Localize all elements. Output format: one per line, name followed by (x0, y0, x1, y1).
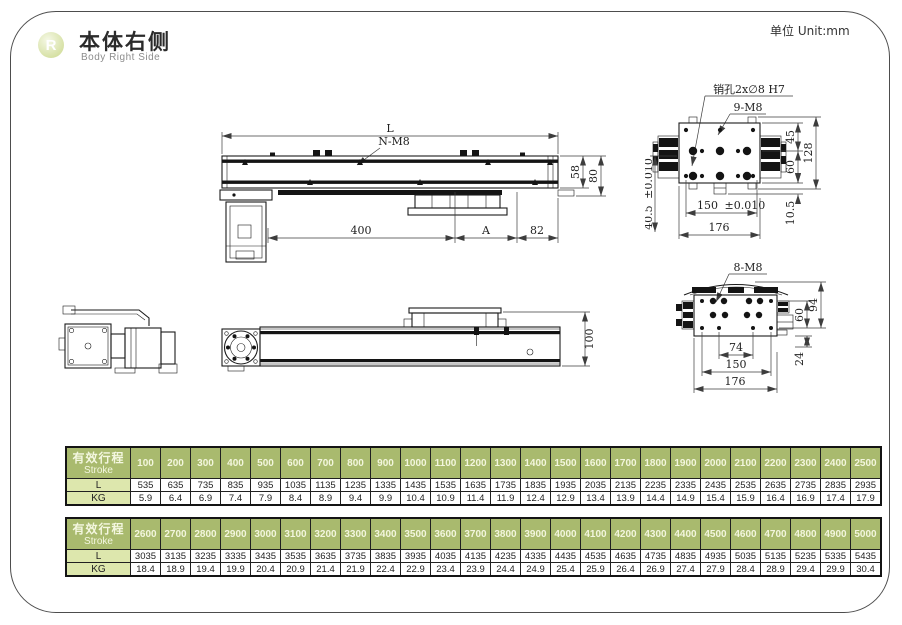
kg-value-cell: 14.4 (641, 492, 671, 506)
l-value-cell: 535 (131, 479, 161, 492)
l-value-cell: 4935 (701, 550, 731, 563)
kg-value-cell: 13.4 (581, 492, 611, 506)
l-value-cell: 3335 (221, 550, 251, 563)
stroke-value-header: 1200 (461, 447, 491, 479)
kg-value-cell: 27.4 (671, 563, 701, 577)
stroke-value-header: 1600 (581, 447, 611, 479)
stroke-value-header: 2800 (191, 518, 221, 550)
stroke-value-header: 3700 (461, 518, 491, 550)
stroke-value-header: 100 (131, 447, 161, 479)
kg-value-cell: 23.9 (461, 563, 491, 577)
l-value-cell: 3435 (251, 550, 281, 563)
kg-value-cell: 12.9 (551, 492, 581, 506)
rail-dome (684, 285, 788, 296)
side-view-drawing: L N-M8 (210, 106, 660, 276)
stroke-value-header: 1400 (521, 447, 551, 479)
stroke-table-2: 有效行程Stroke260027002800290030003100320033… (65, 517, 882, 577)
kg-value-cell: 23.4 (431, 563, 461, 577)
kg-value-cell: 18.4 (131, 563, 161, 577)
stroke-value-header: 2500 (851, 447, 882, 479)
kg-value-cell: 17.9 (851, 492, 882, 506)
dim-176-label: 176 (709, 221, 730, 234)
stroke-value-header: 3400 (371, 518, 401, 550)
l-value-cell: 2335 (671, 479, 701, 492)
dim-150-tol: ±0.010 (725, 199, 766, 212)
kg-value-cell: 29.9 (821, 563, 851, 577)
dim-100-group: 100 (503, 312, 596, 366)
dim-bottom-group: 74 150 176 (694, 332, 777, 393)
n-m8-label: N-M8 (378, 135, 410, 148)
stroke-table-2-container: 有效行程Stroke260027002800290030003100320033… (65, 517, 882, 577)
kg-value-cell: 9.4 (341, 492, 371, 506)
bearing-housing (222, 329, 260, 371)
stroke-value-header: 1300 (491, 447, 521, 479)
stroke-value-header: 500 (251, 447, 281, 479)
stroke-value-header: 1700 (611, 447, 641, 479)
kg-value-cell: 15.9 (731, 492, 761, 506)
kg-value-cell: 8.4 (281, 492, 311, 506)
stroke-value-header: 2000 (701, 447, 731, 479)
right-roller (777, 301, 793, 335)
kg-value-cell: 28.4 (731, 563, 761, 577)
stroke-table-1-container: 有效行程Stroke100200300400500600700800900100… (65, 446, 882, 506)
l-value-cell: 3835 (371, 550, 401, 563)
stroke-value-header: 2200 (761, 447, 791, 479)
kg-value-cell: 16.9 (791, 492, 821, 506)
stroke-value-header: 4700 (761, 518, 791, 550)
l-value-cell: 5035 (731, 550, 761, 563)
kg-value-cell: 22.9 (401, 563, 431, 577)
kg-value-cell: 11.9 (491, 492, 521, 506)
l-value-cell: 4235 (491, 550, 521, 563)
l-value-cell: 5435 (851, 550, 882, 563)
stroke-value-header: 400 (221, 447, 251, 479)
dim-94-label: 94 (807, 298, 820, 312)
motor-unit-outline (59, 306, 177, 373)
kg-value-cell: 17.4 (821, 492, 851, 506)
l-value-cell: 735 (191, 479, 221, 492)
l-value-cell: 5135 (761, 550, 791, 563)
stroke-value-header: 2300 (791, 447, 821, 479)
l-value-cell: 4635 (611, 550, 641, 563)
dim-74-label: 74 (729, 341, 743, 354)
dim-bottom-group: 400 A 82 (268, 192, 558, 243)
l-value-cell: 4735 (641, 550, 671, 563)
stroke-value-header: 4300 (641, 518, 671, 550)
l-value-cell: 1735 (491, 479, 521, 492)
l-value-cell: 1235 (341, 479, 371, 492)
kg-value-cell: 18.9 (161, 563, 191, 577)
kg-value-cell: 8.9 (311, 492, 341, 506)
row-label-kg: KG (66, 492, 131, 506)
stroke-value-header: 5000 (851, 518, 882, 550)
kg-value-cell: 25.9 (581, 563, 611, 577)
dim-400-label: 400 (351, 224, 372, 237)
stroke-value-header: 3600 (431, 518, 461, 550)
stroke-value-header: 1500 (551, 447, 581, 479)
kg-value-cell: 10.4 (401, 492, 431, 506)
l-value-cell: 1035 (281, 479, 311, 492)
l-value-cell: 2835 (821, 479, 851, 492)
kg-value-cell: 29.4 (791, 563, 821, 577)
kg-value-cell: 21.4 (311, 563, 341, 577)
stroke-value-header: 4000 (551, 518, 581, 550)
l-value-cell: 1635 (461, 479, 491, 492)
dim-length-label: L (386, 122, 394, 135)
stroke-value-header: 2600 (131, 518, 161, 550)
dim-24-label: 24 (793, 352, 806, 366)
l-value-cell: 4135 (461, 550, 491, 563)
dim-82-label: 82 (530, 224, 544, 237)
pin-hole-label: 销孔2x∅8 H7 (713, 82, 785, 96)
kg-value-cell: 14.9 (671, 492, 701, 506)
stroke-value-header: 3100 (281, 518, 311, 550)
dim-128-label: 128 (802, 143, 815, 164)
l-value-cell: 1835 (521, 479, 551, 492)
stroke-value-header: 300 (191, 447, 221, 479)
kg-value-cell: 6.4 (161, 492, 191, 506)
l-value-cell: 4835 (671, 550, 701, 563)
l-value-cell: 2735 (791, 479, 821, 492)
l-value-cell: 3935 (401, 550, 431, 563)
base-end-view-drawing: 8-M8 60 94 (645, 260, 902, 408)
dim-150-label: 150 (726, 358, 747, 371)
kg-value-cell: 13.9 (611, 492, 641, 506)
stroke-value-header: 4200 (611, 518, 641, 550)
kg-value-cell: 6.9 (191, 492, 221, 506)
row-label-l: L (66, 479, 131, 492)
motor-unit-drawing (55, 298, 195, 383)
kg-value-cell: 21.9 (341, 563, 371, 577)
kg-value-cell: 26.9 (641, 563, 671, 577)
dim-176-label: 176 (725, 375, 746, 388)
stroke-value-header: 2700 (161, 518, 191, 550)
kg-value-cell: 10.9 (431, 492, 461, 506)
kg-value-cell: 11.4 (461, 492, 491, 506)
l-value-cell: 3535 (281, 550, 311, 563)
page-subtitle: Body Right Side (81, 52, 160, 63)
row-label-l: L (66, 550, 131, 563)
l-value-cell: 4435 (551, 550, 581, 563)
stroke-value-header: 600 (281, 447, 311, 479)
l-value-cell: 2535 (731, 479, 761, 492)
rail-outline (222, 150, 574, 196)
kg-value-cell: 26.4 (611, 563, 641, 577)
dim-58-label: 58 (569, 165, 582, 179)
stroke-value-header: 4600 (731, 518, 761, 550)
stroke-value-header: 800 (341, 447, 371, 479)
carriage-top-view-drawing: 销孔2x∅8 H7 9-M8 45 60 (645, 80, 902, 265)
stroke-value-header: 700 (311, 447, 341, 479)
stroke-value-header: 4500 (701, 518, 731, 550)
kg-value-cell: 22.4 (371, 563, 401, 577)
l-value-cell: 3235 (191, 550, 221, 563)
dim-a-label: A (481, 224, 491, 237)
stroke-value-header: 3500 (401, 518, 431, 550)
stroke-value-header: 4400 (671, 518, 701, 550)
dim-40-5-label: 40.5 (645, 205, 655, 230)
stroke-value-header: 3000 (251, 518, 281, 550)
l-value-cell: 4335 (521, 550, 551, 563)
stroke-value-header: 1900 (671, 447, 701, 479)
l-value-cell: 4535 (581, 550, 611, 563)
l-value-cell: 2035 (581, 479, 611, 492)
stroke-value-header: 1100 (431, 447, 461, 479)
dim-10-5-label: 10.5 (784, 201, 797, 226)
kg-value-cell: 30.4 (851, 563, 882, 577)
kg-value-cell: 25.4 (551, 563, 581, 577)
kg-value-cell: 7.9 (251, 492, 281, 506)
stroke-value-header: 3800 (491, 518, 521, 550)
nine-m8-label: 9-M8 (734, 101, 763, 114)
kg-value-cell: 28.9 (761, 563, 791, 577)
kg-value-cell: 19.4 (191, 563, 221, 577)
l-value-cell: 2235 (641, 479, 671, 492)
badge-letter: R (46, 37, 57, 54)
dim-60-label: 60 (793, 308, 806, 322)
dim-60-label: 60 (784, 160, 797, 174)
carriage-top (404, 308, 506, 327)
kg-value-cell: 19.9 (221, 563, 251, 577)
motor-outline (220, 190, 272, 262)
dim-100-label: 100 (583, 329, 596, 350)
eight-m8-label: 8-M8 (734, 261, 763, 274)
left-roller (676, 301, 694, 329)
l-value-cell: 835 (221, 479, 251, 492)
right-side-badge: R (38, 32, 64, 58)
l-value-cell: 2435 (701, 479, 731, 492)
dim-40-5-tol: ±0.010 (645, 158, 655, 199)
catalog-page: { "header": { "badge_letter": "R", "titl… (0, 0, 902, 625)
carriage-bottom-view (278, 190, 507, 215)
l-value-cell: 1135 (311, 479, 341, 492)
l-value-cell: 935 (251, 479, 281, 492)
l-value-cell: 3035 (131, 550, 161, 563)
left-roller (653, 136, 679, 178)
stroke-value-header: 4900 (821, 518, 851, 550)
stroke-value-header: 3300 (341, 518, 371, 550)
l-value-cell: 1335 (371, 479, 401, 492)
svg-text:150 ±0.010: 150 ±0.010 (697, 199, 765, 212)
dim-45-label: 45 (784, 130, 797, 144)
l-value-cell: 2935 (851, 479, 882, 492)
kg-value-cell: 24.4 (491, 563, 521, 577)
stroke-header-label: 有效行程Stroke (66, 447, 131, 479)
dim-150-label: 150 (697, 199, 718, 212)
l-value-cell: 4035 (431, 550, 461, 563)
kg-value-cell: 9.9 (371, 492, 401, 506)
stroke-value-header: 1800 (641, 447, 671, 479)
stroke-table-1: 有效行程Stroke100200300400500600700800900100… (65, 446, 882, 506)
kg-value-cell: 27.9 (701, 563, 731, 577)
l-value-cell: 2635 (761, 479, 791, 492)
l-value-cell: 3135 (161, 550, 191, 563)
kg-value-cell: 12.4 (521, 492, 551, 506)
l-value-cell: 635 (161, 479, 191, 492)
kg-value-cell: 16.4 (761, 492, 791, 506)
row-label-kg: KG (66, 563, 131, 577)
dim-80-label: 80 (587, 169, 600, 183)
l-value-cell: 3735 (341, 550, 371, 563)
kg-value-cell: 24.9 (521, 563, 551, 577)
svg-text:40.5 ±0.010: 40.5 ±0.010 (645, 158, 655, 230)
kg-value-cell: 20.9 (281, 563, 311, 577)
carriage-plate (679, 117, 760, 194)
l-value-cell: 5235 (791, 550, 821, 563)
l-value-cell: 5335 (821, 550, 851, 563)
l-value-cell: 1435 (401, 479, 431, 492)
stroke-value-header: 1000 (401, 447, 431, 479)
l-value-cell: 3635 (311, 550, 341, 563)
l-value-cell: 1935 (551, 479, 581, 492)
unit-label: 单位 Unit:mm (770, 22, 850, 39)
kg-value-cell: 7.4 (221, 492, 251, 506)
stroke-value-header: 200 (161, 447, 191, 479)
rail-outline (260, 327, 560, 366)
stroke-value-header: 2900 (221, 518, 251, 550)
kg-value-cell: 15.4 (701, 492, 731, 506)
l-value-cell: 2135 (611, 479, 641, 492)
stroke-value-header: 3200 (311, 518, 341, 550)
stroke-value-header: 3900 (521, 518, 551, 550)
stroke-value-header: 2400 (821, 447, 851, 479)
l-value-cell: 1535 (431, 479, 461, 492)
stroke-value-header: 900 (371, 447, 401, 479)
right-roller (760, 136, 786, 178)
stroke-value-header: 2100 (731, 447, 761, 479)
kg-value-cell: 20.4 (251, 563, 281, 577)
stroke-value-header: 4100 (581, 518, 611, 550)
base-plate (694, 295, 777, 336)
kg-value-cell: 5.9 (131, 492, 161, 506)
stroke-value-header: 4800 (791, 518, 821, 550)
stroke-header-label: 有效行程Stroke (66, 518, 131, 550)
rear-side-view-drawing: 100 (212, 298, 617, 383)
